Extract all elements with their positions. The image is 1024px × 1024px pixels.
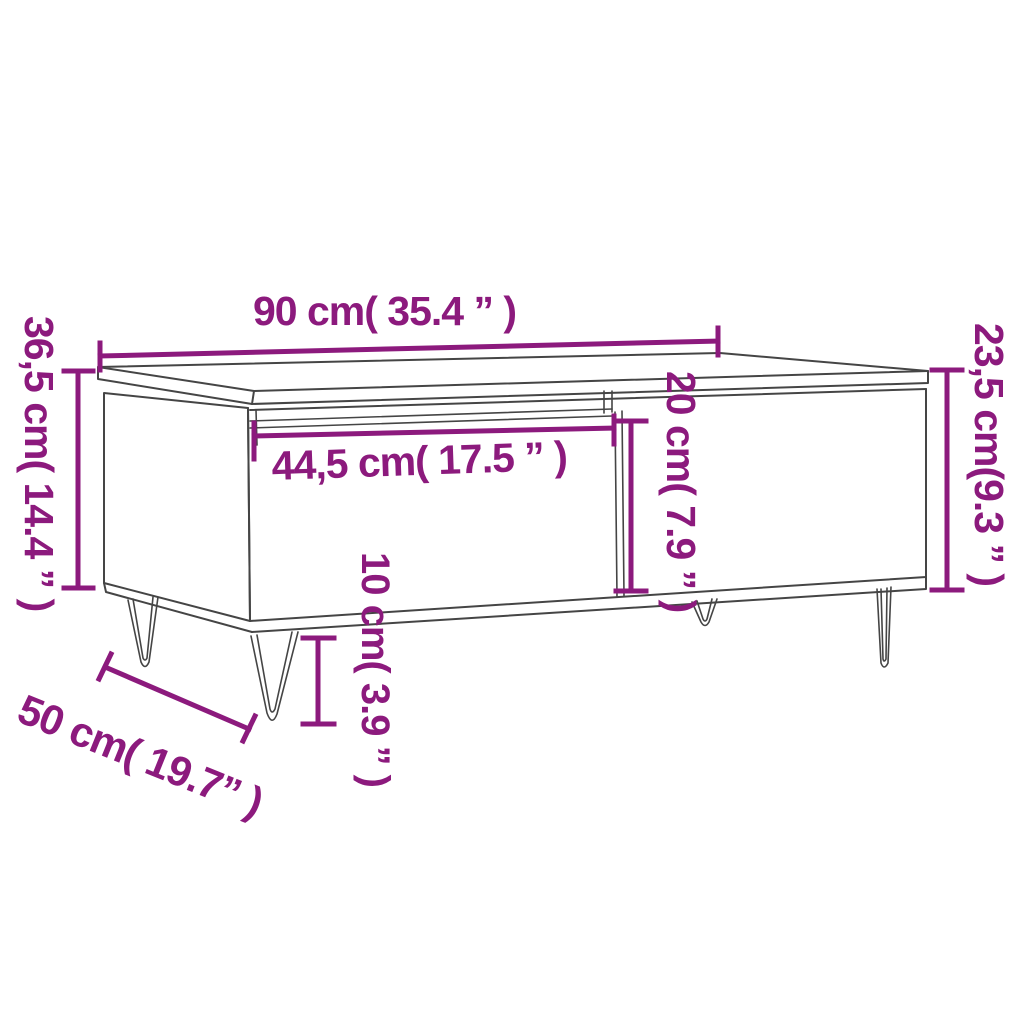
- drawer-front: [250, 391, 624, 597]
- dimension-line-top-width: [100, 328, 718, 370]
- hairpin-leg-front-right: [877, 587, 891, 667]
- dimension-line-right-height: [932, 370, 962, 590]
- product-dimension-diagram: 90 cm( 35.4 ” ) 36,5 cm( 14.4 ” ) 23,5 c…: [0, 0, 1024, 1024]
- dimension-line-leg-height: [303, 638, 334, 724]
- dimension-line-left-height: [64, 371, 93, 588]
- dimension-label-left-height: 36,5 cm( 14.4 ” ): [18, 316, 59, 611]
- dimension-label-drawer-width: 44,5 cm( 17.5 ” ): [271, 436, 567, 487]
- hairpin-leg-front-left: [251, 632, 298, 720]
- dimension-label-drawer-height: 20 cm( 7.9 ” ): [660, 371, 701, 612]
- table-carcass: [104, 389, 926, 632]
- table-top: [98, 353, 928, 404]
- dimension-label-top-width: 90 cm( 35.4 ” ): [253, 291, 516, 332]
- hairpin-leg-back-left: [128, 597, 158, 667]
- dimension-line-drawer-height: [616, 421, 646, 591]
- dimension-label-right-height: 23,5 cm(9.3 ” ): [968, 323, 1009, 586]
- dimension-label-leg-height: 10 cm( 3.9 ” ): [355, 552, 395, 787]
- table-line-drawing: [0, 0, 1024, 1024]
